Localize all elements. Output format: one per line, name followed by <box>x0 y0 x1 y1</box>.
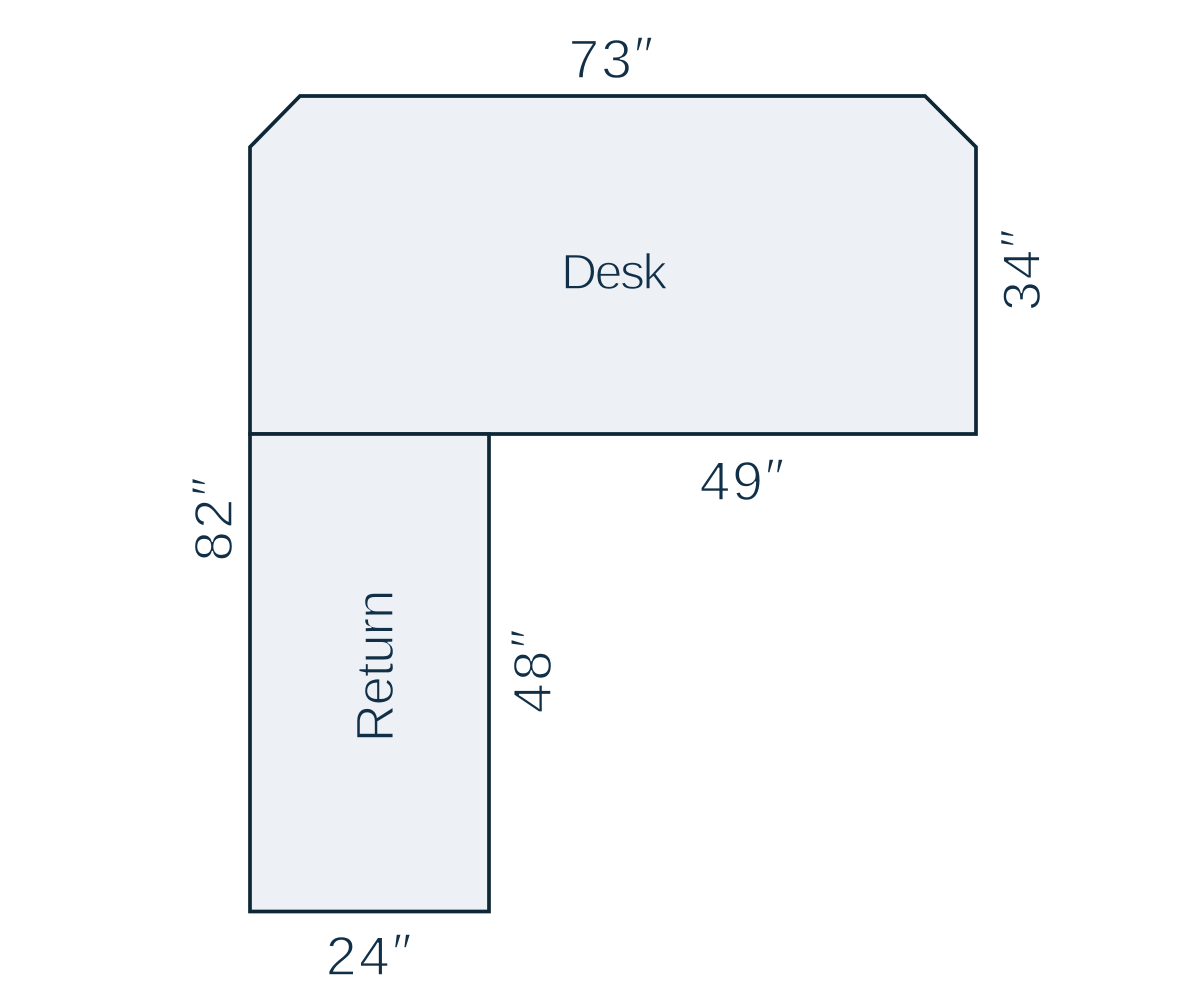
svg-text:49″: 49″ <box>700 447 787 512</box>
svg-text:24″: 24″ <box>326 922 414 987</box>
svg-text:73″: 73″ <box>569 25 656 90</box>
svg-text:48″: 48″ <box>500 627 563 714</box>
svg-text:82″: 82″ <box>181 475 244 562</box>
svg-text:34″: 34″ <box>990 227 1052 311</box>
svg-text:Return: Return <box>346 591 405 743</box>
svg-text:Desk: Desk <box>561 244 668 300</box>
